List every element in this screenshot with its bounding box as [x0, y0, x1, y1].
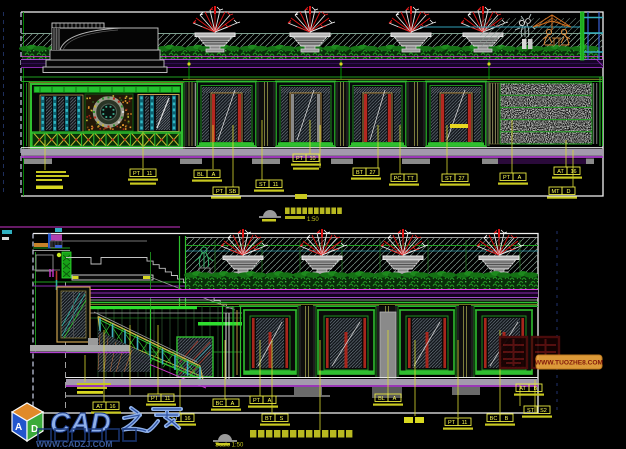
svg-text:MT: MT	[552, 189, 561, 195]
svg-text:11: 11	[147, 171, 153, 177]
svg-text:PT: PT	[151, 396, 159, 402]
svg-text:AT: AT	[519, 386, 526, 392]
svg-text:A: A	[212, 172, 216, 178]
svg-text:BL: BL	[197, 172, 204, 178]
svg-text:PT: PT	[216, 189, 224, 195]
svg-text:27: 27	[458, 176, 464, 182]
svg-text:PT: PT	[253, 398, 261, 404]
svg-text:PT: PT	[448, 420, 456, 426]
svg-text:A: A	[393, 396, 397, 402]
svg-text:A: A	[231, 401, 235, 407]
svg-text:27: 27	[369, 170, 375, 176]
svg-text:AT: AT	[557, 169, 564, 175]
svg-text:11: 11	[462, 420, 468, 426]
svg-text:16: 16	[184, 416, 190, 422]
svg-text:SB: SB	[229, 189, 237, 195]
svg-text:B: B	[505, 416, 509, 422]
svg-text:A: A	[268, 398, 272, 404]
svg-text:11: 11	[273, 182, 279, 188]
svg-text:B: B	[534, 386, 538, 392]
svg-text:11: 11	[165, 396, 171, 402]
svg-text:S: S	[280, 416, 284, 422]
svg-text:PT: PT	[133, 171, 141, 177]
svg-text:PT: PT	[503, 175, 511, 181]
svg-text:ST: ST	[445, 176, 453, 182]
svg-text:BL: BL	[378, 396, 385, 402]
svg-text:TT: TT	[407, 176, 414, 182]
svg-text:S2: S2	[540, 408, 547, 414]
svg-text:WWW.CADZJ.COM: WWW.CADZJ.COM	[36, 439, 113, 449]
svg-text:10: 10	[309, 156, 315, 162]
svg-text:BC: BC	[490, 416, 498, 422]
svg-text:ST: ST	[259, 182, 267, 188]
svg-text:BT: BT	[265, 416, 273, 422]
svg-text:A: A	[518, 175, 522, 181]
svg-text:16: 16	[570, 169, 576, 175]
svg-text:ST: ST	[527, 408, 535, 414]
svg-text:A: A	[15, 422, 22, 433]
svg-text:PT: PT	[296, 156, 304, 162]
svg-text:PC: PC	[394, 176, 402, 182]
svg-text:BT: BT	[356, 170, 364, 176]
svg-text:D: D	[567, 189, 571, 195]
svg-text:WWW.TUOZHE8.COM: WWW.TUOZHE8.COM	[535, 360, 604, 367]
svg-text:Scale 1:50: Scale 1:50	[215, 443, 244, 449]
svg-text:1:50: 1:50	[307, 217, 319, 223]
svg-text:BC: BC	[216, 401, 224, 407]
